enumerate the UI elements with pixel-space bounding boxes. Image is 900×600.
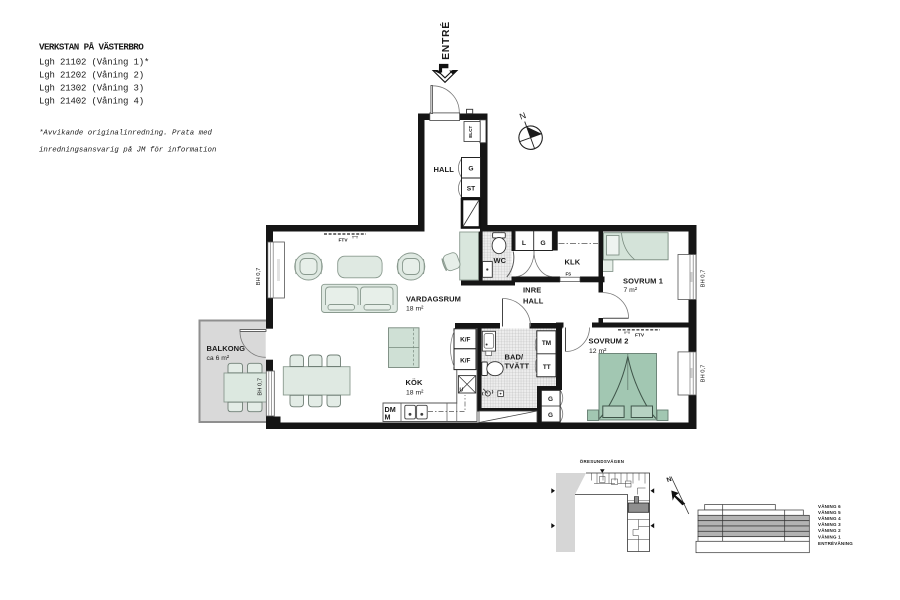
svg-text:M: M [385,413,391,422]
svg-text:G: G [548,396,553,403]
svg-text:K/F: K/F [460,357,470,364]
svg-text:VÅNING 2: VÅNING 2 [818,527,841,533]
svg-text:ca 6 m²: ca 6 m² [207,355,230,362]
svg-text:WC: WC [494,256,507,265]
svg-text:K/F: K/F [460,337,470,344]
svg-text:G: G [468,166,473,173]
svg-text:TM: TM [542,340,551,347]
svg-text:KLK: KLK [565,258,581,267]
svg-text:G: G [540,240,545,247]
svg-text:TVÄTT: TVÄTT [505,362,530,371]
svg-text:HALL: HALL [523,296,544,305]
svg-text:VÅNING 1: VÅNING 1 [818,534,841,540]
svg-text:VÅNING 5: VÅNING 5 [818,509,841,515]
svg-text:Lgh 21402 (Våning 4): Lgh 21402 (Våning 4) [39,97,144,107]
svg-text:Lgh 21202 (Våning 2): Lgh 21202 (Våning 2) [39,71,144,81]
svg-text:inredningsansvarig på JM för i: inredningsansvarig på JM för information [39,146,216,155]
svg-text:BAD/: BAD/ [505,352,525,361]
svg-text:VÅNING 3: VÅNING 3 [818,521,841,527]
svg-text:18 m²: 18 m² [406,389,424,396]
svg-text:SOVRUM 1: SOVRUM 1 [623,277,663,286]
svg-text:FTV: FTV [339,238,349,244]
svg-text:INRE: INRE [523,285,541,294]
svg-text:ENTRÉVÅNING: ENTRÉVÅNING [818,539,853,546]
svg-text:Lgh 21102 (Våning 1)*: Lgh 21102 (Våning 1)* [39,58,149,68]
svg-text:VÅNING 6: VÅNING 6 [818,503,841,509]
svg-text:ENTRÉ: ENTRÉ [439,21,452,60]
svg-text:FS: FS [566,272,572,277]
svg-text:HALL: HALL [434,165,455,174]
svg-text:G: G [548,412,553,419]
svg-text:FTV: FTV [635,332,645,338]
svg-text:BH 0,7: BH 0,7 [257,378,263,396]
svg-text:VERKSTAN PÅ VÄSTERBRO: VERKSTAN PÅ VÄSTERBRO [39,42,144,53]
svg-text:12 m²: 12 m² [589,348,607,355]
svg-text:TT: TT [543,364,551,371]
svg-text:BH 0,7: BH 0,7 [700,270,706,288]
svg-text:ELCT: ELCT [468,126,473,138]
svg-text:*Avvikande originalinredning.: *Avvikande originalinredning. Prata med [39,130,213,138]
svg-text:BALKONG: BALKONG [207,344,246,353]
svg-text:SOVRUM 2: SOVRUM 2 [589,337,629,346]
svg-text:VARDAGSRUM: VARDAGSRUM [406,294,461,303]
svg-text:Lgh 21302 (Våning 3): Lgh 21302 (Våning 3) [39,84,144,94]
svg-text:ÖRESUNDSVÄGEN: ÖRESUNDSVÄGEN [580,459,624,464]
svg-text:7 m²: 7 m² [624,287,638,294]
svg-text:VÅNING 4: VÅNING 4 [818,515,841,521]
svg-text:BH 0,7: BH 0,7 [700,365,706,383]
svg-text:L: L [522,240,526,247]
svg-text:KÖK: KÖK [406,378,423,387]
svg-text:BH 0,7: BH 0,7 [256,268,262,286]
svg-text:U: U [460,388,464,394]
svg-text:ST: ST [467,186,475,193]
svg-text:18 m²: 18 m² [406,306,424,313]
